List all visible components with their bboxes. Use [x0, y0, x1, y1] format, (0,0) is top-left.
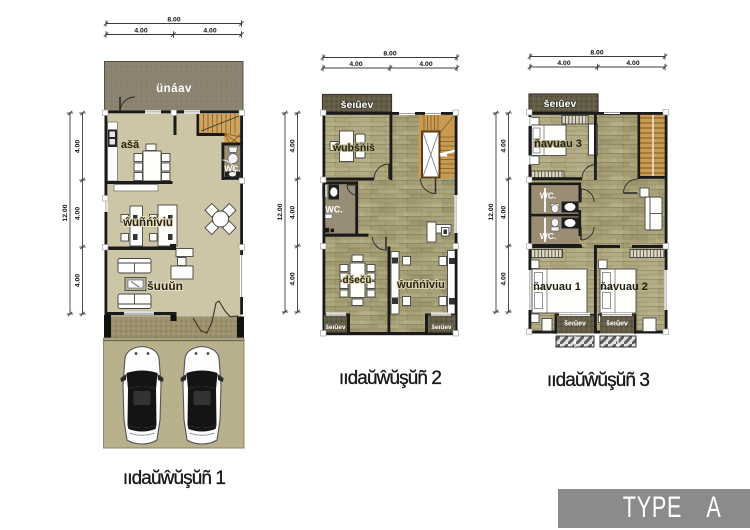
svg-text:ŵuñńîviu: ŵuñńîviu [396, 279, 445, 291]
svg-text:WC.: WC. [540, 231, 557, 241]
svg-text:4.00: 4.00 [75, 140, 82, 153]
svg-text:12.00: 12.00 [277, 203, 284, 220]
svg-text:4.00: 4.00 [501, 272, 508, 285]
svg-text:4.00: 4.00 [501, 206, 508, 219]
svg-text:4.00: 4.00 [134, 28, 147, 35]
svg-text:4.00: 4.00 [501, 139, 508, 152]
svg-text:šeıûev: šeıûev [431, 324, 452, 331]
svg-text:ııdaŭŵŭşŭñ 1: ııdaŭŵŭşŭñ 1 [123, 468, 226, 489]
svg-text:TYPE: TYPE [623, 489, 682, 523]
svg-text:4.00: 4.00 [557, 60, 570, 67]
svg-text:4.00: 4.00 [290, 139, 297, 152]
svg-text:4.00: 4.00 [75, 207, 82, 220]
svg-text:šeıûev: šeıûev [325, 324, 346, 331]
svg-text:8.00: 8.00 [590, 50, 603, 57]
svg-text:šeıûev: šeıûev [606, 321, 628, 328]
svg-text:WC.: WC. [325, 205, 343, 215]
svg-text:8.00: 8.00 [383, 51, 396, 58]
svg-text:šeıûev: šeıûev [544, 98, 577, 110]
svg-text:ŵubšńiš: ŵubšńiš [332, 142, 375, 154]
svg-text:šeıûev: šeıûev [341, 99, 374, 111]
svg-text:4.00: 4.00 [626, 60, 639, 67]
svg-text:4.00: 4.00 [419, 61, 432, 68]
svg-text:ňavuau 1: ňavuau 1 [533, 281, 581, 293]
svg-text:4.00: 4.00 [203, 28, 216, 35]
svg-text:ŵuñńîviu: ŵuñńîviu [122, 217, 173, 229]
svg-text:ııdaŭŵŭşŭñ 3: ııdaŭŵŭşŭñ 3 [547, 370, 650, 391]
svg-text:4.00: 4.00 [290, 206, 297, 219]
svg-text:šuuŭn: šuuŭn [147, 279, 183, 293]
svg-text:ňavuau 3: ňavuau 3 [534, 138, 582, 150]
svg-text:ııdaŭŵŭşŭñ 2: ııdaŭŵŭşŭñ 2 [339, 368, 442, 389]
svg-text:4.00: 4.00 [349, 61, 362, 68]
svg-text:dšečŭ: dšečŭ [343, 275, 372, 286]
svg-text:ünáav: ünáav [156, 83, 192, 95]
svg-text:4.00: 4.00 [75, 274, 82, 287]
svg-text:A: A [706, 489, 721, 523]
svg-text:12.00: 12.00 [488, 203, 495, 220]
svg-text:ašă: ašă [121, 139, 140, 151]
svg-text:4.00: 4.00 [290, 272, 297, 285]
svg-text:12.00: 12.00 [62, 204, 69, 221]
svg-text:8.00: 8.00 [167, 17, 180, 24]
svg-text:WC.: WC. [540, 191, 557, 201]
svg-text:šeıûev: šeıûev [564, 321, 586, 328]
svg-text:ňavuau 2: ňavuau 2 [600, 281, 648, 293]
